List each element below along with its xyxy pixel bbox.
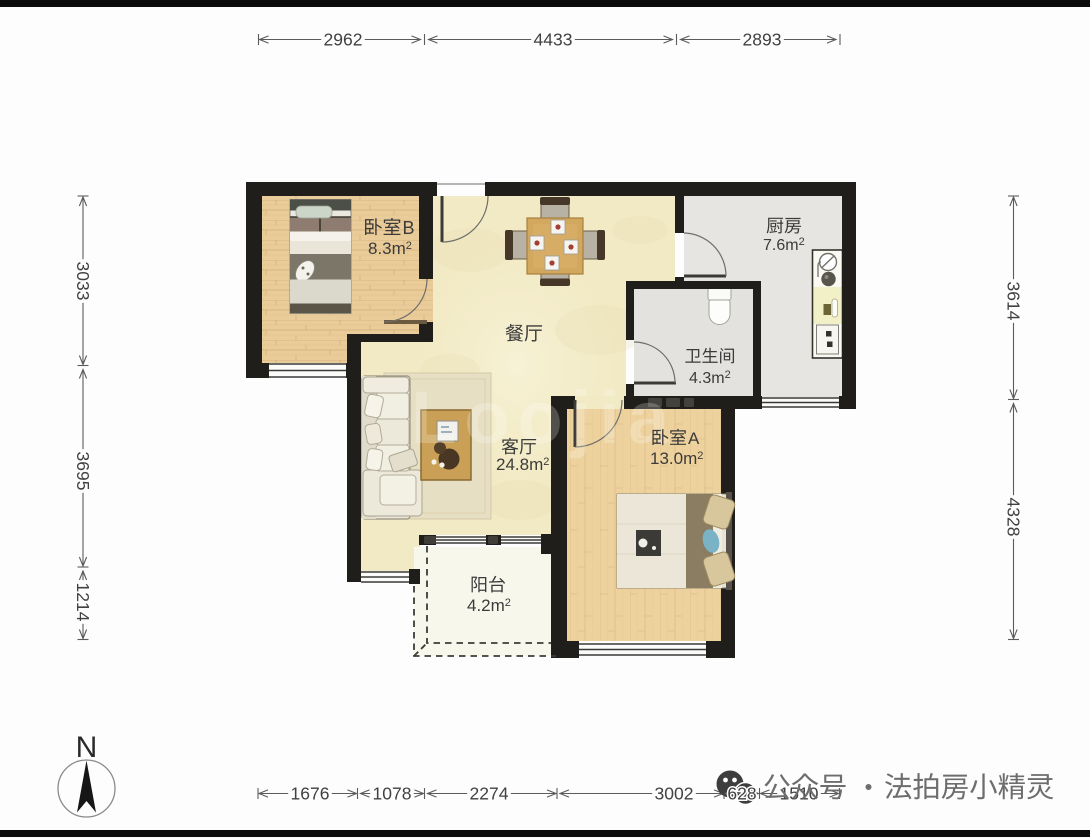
- svg-text:628: 628: [727, 784, 756, 804]
- svg-text:8.3m2: 8.3m2: [368, 239, 412, 258]
- svg-text:1214: 1214: [73, 583, 93, 622]
- svg-text:4328: 4328: [1003, 498, 1023, 537]
- svg-text:Loojia: Loojia: [411, 376, 677, 459]
- svg-text:13.0m2: 13.0m2: [650, 449, 703, 468]
- svg-text:2893: 2893: [743, 30, 782, 50]
- svg-text:2274: 2274: [470, 784, 509, 804]
- svg-text:2962: 2962: [324, 30, 363, 50]
- svg-text:4.3m2: 4.3m2: [689, 369, 731, 387]
- svg-text:1676: 1676: [291, 784, 330, 804]
- svg-text:N: N: [76, 731, 98, 764]
- svg-text:3695: 3695: [73, 452, 93, 491]
- svg-text:4433: 4433: [534, 30, 573, 50]
- svg-text:24.8m2: 24.8m2: [496, 455, 549, 474]
- svg-text:4.2m2: 4.2m2: [467, 596, 511, 615]
- svg-text:A: A: [688, 429, 700, 448]
- svg-text:B: B: [403, 218, 415, 238]
- svg-text:1078: 1078: [373, 784, 412, 804]
- svg-text:3033: 3033: [73, 262, 93, 301]
- svg-text:3002: 3002: [655, 784, 694, 804]
- svg-text:3614: 3614: [1003, 282, 1023, 321]
- svg-text:7.6m2: 7.6m2: [763, 236, 805, 254]
